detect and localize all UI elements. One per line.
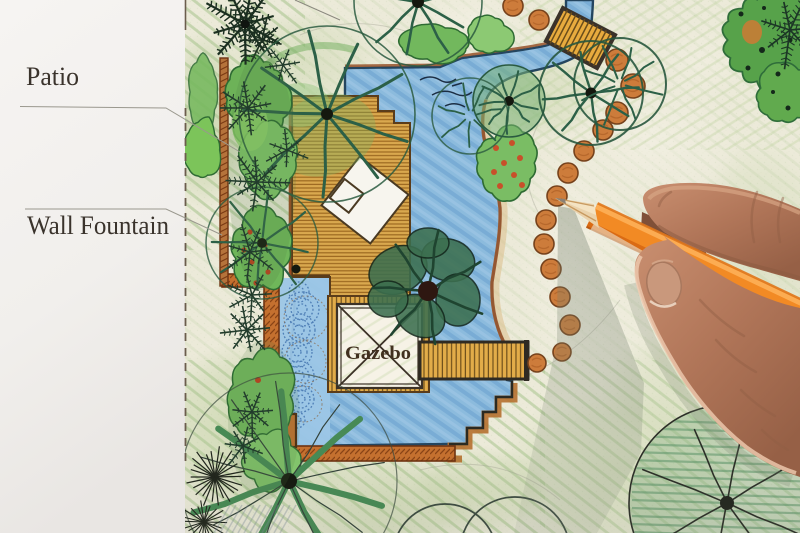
svg-text:Wall Fountain: Wall Fountain — [27, 211, 169, 240]
svg-text:Patio: Patio — [26, 62, 79, 91]
